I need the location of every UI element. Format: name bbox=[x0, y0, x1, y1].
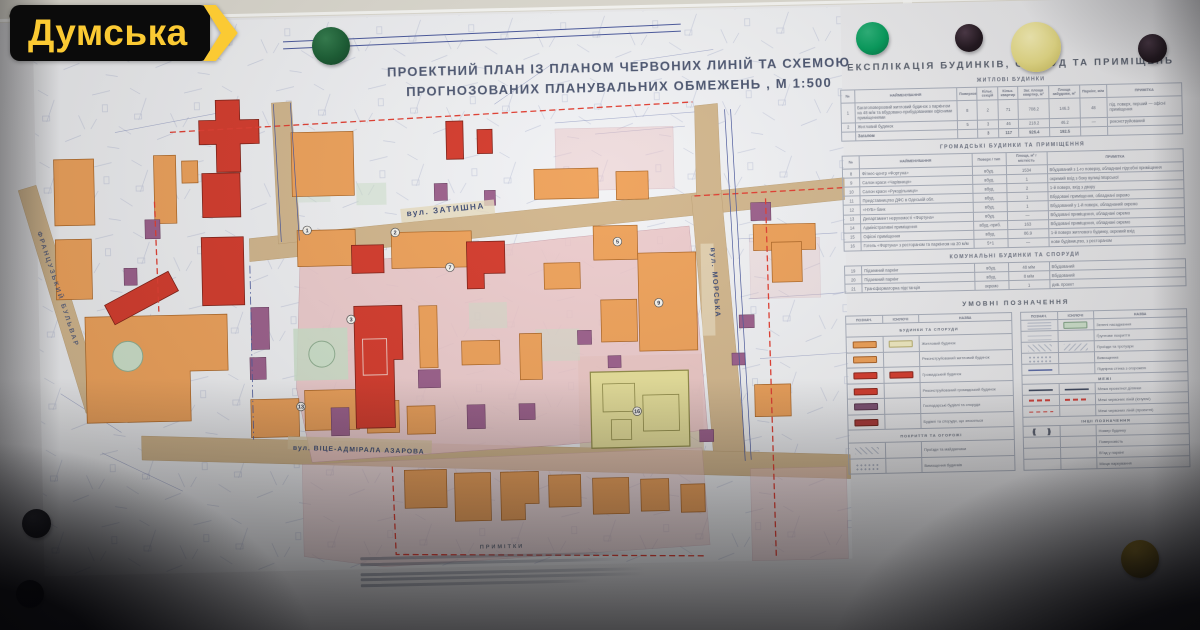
color-swatch bbox=[1027, 322, 1051, 330]
col-header: Заг. площа квартир, м² bbox=[1018, 86, 1049, 100]
cell-number: 21 bbox=[845, 284, 862, 293]
color-swatch bbox=[1030, 439, 1054, 447]
color-swatch bbox=[1030, 461, 1054, 469]
cell-value: 3 bbox=[978, 128, 999, 138]
legend-swatch-cell bbox=[883, 351, 920, 367]
magnet-green bbox=[856, 22, 889, 55]
color-swatch bbox=[889, 356, 913, 364]
legend-entry-label: Вимощення будинків bbox=[922, 455, 1015, 473]
col-header: Поверховість bbox=[957, 87, 978, 101]
cell-value: 708.2 bbox=[1018, 99, 1049, 119]
legend-table-left: ПОЗНАЧ. ІСНУЮЧІ НАЗВА БУДИНКИ ТА СПОРУДИ… bbox=[845, 312, 1015, 475]
legend-swatch-cell bbox=[846, 336, 883, 352]
color-swatch bbox=[1028, 386, 1052, 394]
cell-name: Готель «Фортуна» з рестораном та паркінг… bbox=[861, 239, 974, 251]
color-swatch bbox=[1066, 427, 1090, 435]
legend-swatch-cell bbox=[884, 398, 921, 414]
magnet-yellow bbox=[1011, 22, 1061, 72]
color-swatch bbox=[1028, 344, 1052, 352]
legend-swatch-cell bbox=[1021, 342, 1058, 354]
legend-swatch-cell bbox=[1022, 395, 1059, 407]
marker-number: 3 bbox=[349, 317, 352, 323]
legend-swatch-cell bbox=[885, 457, 922, 473]
legend: ПОЗНАЧ. ІСНУЮЧІ НАЗВА БУДИНКИ ТА СПОРУДИ… bbox=[845, 309, 1190, 475]
cell-number: 9 bbox=[843, 178, 860, 187]
color-swatch bbox=[854, 419, 878, 427]
legend-swatch-cell bbox=[847, 399, 884, 415]
cell-number: 20 bbox=[845, 275, 862, 284]
cell-value: 71 bbox=[998, 100, 1019, 120]
legend-swatch-cell bbox=[885, 442, 922, 458]
color-swatch bbox=[1065, 407, 1089, 415]
magnet-black-top-2 bbox=[1138, 34, 1167, 63]
marker-number: 1 bbox=[306, 228, 309, 234]
courtyard-garden bbox=[309, 341, 336, 368]
cell-number: 2 bbox=[841, 122, 855, 131]
legend-swatch-cell bbox=[1058, 352, 1095, 364]
cell-number: 16 bbox=[844, 242, 861, 251]
legend-swatch-cell bbox=[883, 336, 920, 352]
marker-number: 5 bbox=[616, 239, 619, 245]
col-header: № bbox=[842, 156, 859, 170]
cell-number: 11 bbox=[843, 196, 860, 205]
legend-swatch-cell bbox=[884, 413, 921, 429]
residential-table: № НАЙМЕНУВАННЯ Поверховість Кільк. секці… bbox=[840, 82, 1183, 141]
street-morska-north bbox=[694, 103, 721, 198]
col-header: Паркінг, м/м bbox=[1079, 84, 1107, 98]
color-swatch bbox=[853, 372, 877, 380]
cell-number: 19 bbox=[845, 266, 862, 275]
legend-swatch-cell bbox=[1022, 384, 1059, 396]
cell-value: 192.5 bbox=[1050, 127, 1081, 137]
dumska-logo-pill: Думська bbox=[10, 5, 210, 61]
magnet-black-top-1 bbox=[955, 24, 983, 52]
color-swatch bbox=[855, 463, 879, 471]
legend-swatch-cell bbox=[1059, 405, 1096, 417]
color-swatch bbox=[890, 402, 914, 410]
col-header: Кільк. секцій bbox=[977, 87, 998, 101]
magnet-mustard bbox=[1121, 540, 1159, 578]
color-swatch bbox=[1066, 449, 1090, 457]
color-swatch bbox=[1029, 397, 1053, 405]
marker-number: 16 bbox=[634, 409, 640, 415]
cell-value: 117 bbox=[998, 128, 1019, 138]
legend-swatch-cell bbox=[847, 368, 884, 384]
col-header: Поверх / тип bbox=[972, 152, 1006, 166]
cell-value: 48 bbox=[1080, 98, 1108, 118]
legend-swatch-cell bbox=[1022, 364, 1059, 376]
legend-swatch-cell bbox=[1058, 341, 1095, 353]
color-swatch bbox=[1027, 333, 1051, 341]
legend-swatch-cell bbox=[1021, 353, 1058, 365]
legend-swatch-cell bbox=[849, 458, 886, 474]
color-swatch bbox=[890, 387, 914, 395]
cell-value: окремо bbox=[974, 281, 1008, 291]
color-swatch bbox=[853, 388, 877, 396]
legend-swatch-cell bbox=[1024, 459, 1061, 471]
col-header: Площа, м² / місткість bbox=[1006, 152, 1047, 166]
color-swatch bbox=[1029, 428, 1053, 436]
marker-number: 9 bbox=[657, 301, 660, 307]
marker-number: 7 bbox=[448, 265, 451, 271]
cell-note: див. проект bbox=[1049, 277, 1186, 289]
magnet-black-bottom-2 bbox=[16, 580, 44, 608]
legend-swatch-cell bbox=[1023, 437, 1060, 449]
cell-value: 1 bbox=[1009, 280, 1050, 290]
legend-swatch-cell bbox=[1060, 458, 1097, 470]
legend-row: Вимощення будинків bbox=[849, 455, 1015, 474]
magnet-dark-green bbox=[312, 27, 350, 65]
legend-swatch-cell bbox=[883, 367, 920, 383]
color-swatch bbox=[855, 447, 879, 455]
color-swatch bbox=[854, 403, 878, 411]
magnet-black-bottom-1 bbox=[22, 509, 51, 538]
cell-number: 1 bbox=[841, 103, 855, 123]
legend-swatch-cell bbox=[1058, 363, 1095, 375]
col-header: Кільк. квартир bbox=[997, 86, 1018, 100]
legend-swatch-cell bbox=[847, 383, 884, 399]
marker-number: 2 bbox=[394, 230, 397, 236]
color-swatch bbox=[1067, 460, 1091, 468]
courtyard-circle bbox=[112, 341, 143, 372]
cell-number: 8 bbox=[842, 169, 859, 178]
plan-sheet: 1 2 3 5 7 9 13 16 вул. ЗАТИШНА вул. МОРС… bbox=[0, 0, 1200, 630]
color-swatch bbox=[890, 371, 914, 379]
public-table: № НАЙМЕНУВАННЯ Поверх / тип Площа, м² / … bbox=[842, 148, 1186, 252]
dumska-logo: Думська bbox=[10, 5, 238, 61]
cell-name: Багатоповерховий житловий будинок з парк… bbox=[855, 101, 958, 123]
col-header: Площа забудови, м² bbox=[1049, 85, 1080, 99]
cell-number: 10 bbox=[843, 187, 860, 196]
legend-swatch-cell bbox=[1060, 436, 1097, 448]
color-swatch bbox=[1064, 354, 1088, 362]
dumska-logo-text: Думська bbox=[28, 12, 188, 54]
color-swatch bbox=[892, 462, 916, 470]
cell-note: нове будівництво, з рестораном bbox=[1049, 235, 1186, 247]
photo-of-plan-board: 1 2 3 5 7 9 13 16 вул. ЗАТИШНА вул. МОРС… bbox=[0, 0, 1200, 630]
color-swatch bbox=[1065, 396, 1089, 404]
cell-number: 14 bbox=[844, 224, 861, 233]
legend-entry-label: Місця паркування bbox=[1097, 456, 1190, 469]
legend-swatch-cell bbox=[848, 414, 885, 430]
cell-number: 13 bbox=[843, 214, 860, 223]
color-swatch bbox=[891, 418, 915, 426]
cell-note bbox=[1107, 124, 1182, 135]
legend-swatch-cell bbox=[1021, 331, 1058, 343]
cell-value bbox=[957, 129, 978, 139]
legend-swatch-cell bbox=[1023, 406, 1060, 418]
cell-note: під. поверх, перший — офісні приміщення bbox=[1107, 96, 1182, 117]
legend-row: Місця паркування bbox=[1024, 456, 1190, 471]
cell-number: 12 bbox=[843, 205, 860, 214]
col-header: № bbox=[841, 90, 855, 104]
cell-value: 5 bbox=[957, 120, 978, 130]
cell-value: 8 bbox=[957, 100, 978, 120]
legend-swatch-cell bbox=[1060, 425, 1097, 437]
notes-block: ПРИМІТКИ bbox=[352, 541, 653, 590]
color-swatch bbox=[1028, 366, 1052, 374]
color-swatch bbox=[1066, 438, 1090, 446]
legend-swatch-cell bbox=[1059, 383, 1096, 395]
cell-value bbox=[1080, 126, 1107, 136]
legend-swatch-cell bbox=[1057, 330, 1094, 342]
marker-number: 13 bbox=[298, 404, 304, 410]
color-swatch bbox=[853, 356, 877, 364]
communal-table: 19 Підземний паркінг вбуд. 48 м/м Вбудов… bbox=[844, 258, 1187, 294]
cell-number: 15 bbox=[844, 233, 861, 242]
color-swatch bbox=[1065, 365, 1089, 373]
color-swatch bbox=[1028, 355, 1052, 363]
legend-swatch-cell bbox=[1024, 448, 1061, 460]
legend-swatch-cell bbox=[848, 443, 885, 459]
color-swatch bbox=[1065, 385, 1089, 393]
cell-value: 926.4 bbox=[1019, 127, 1050, 137]
color-swatch bbox=[889, 340, 913, 348]
cell-name: Загалом bbox=[855, 129, 957, 140]
legend-swatch-cell bbox=[1057, 319, 1094, 331]
cell-value: 146.3 bbox=[1049, 98, 1080, 118]
color-swatch bbox=[1030, 450, 1054, 458]
cell-value: 3 bbox=[978, 119, 999, 129]
color-swatch bbox=[1064, 321, 1088, 329]
color-swatch bbox=[891, 446, 915, 454]
cell-value: 46 bbox=[998, 119, 1019, 129]
legend-swatch-cell bbox=[1021, 320, 1058, 332]
cell-value: 2 bbox=[977, 100, 998, 120]
cell-number bbox=[842, 132, 856, 141]
color-swatch bbox=[1064, 332, 1088, 340]
cell-value: 5+1 bbox=[974, 239, 1008, 249]
legend-table-right: ПОЗНАЧ. ІСНУЮЧІ НАЗВА Зелені насадження bbox=[1020, 309, 1190, 472]
color-swatch bbox=[852, 341, 876, 349]
legend-swatch-cell bbox=[1023, 426, 1060, 438]
color-swatch bbox=[1029, 408, 1053, 416]
color-swatch bbox=[1064, 343, 1088, 351]
legend-swatch-cell bbox=[884, 382, 921, 398]
legend-swatch-cell bbox=[1059, 394, 1096, 406]
cell-value: — bbox=[1008, 238, 1049, 248]
legend-swatch-cell bbox=[846, 352, 883, 368]
cell-name: Трансформаторна підстанція bbox=[862, 282, 975, 294]
legend-swatch-cell bbox=[1060, 447, 1097, 459]
